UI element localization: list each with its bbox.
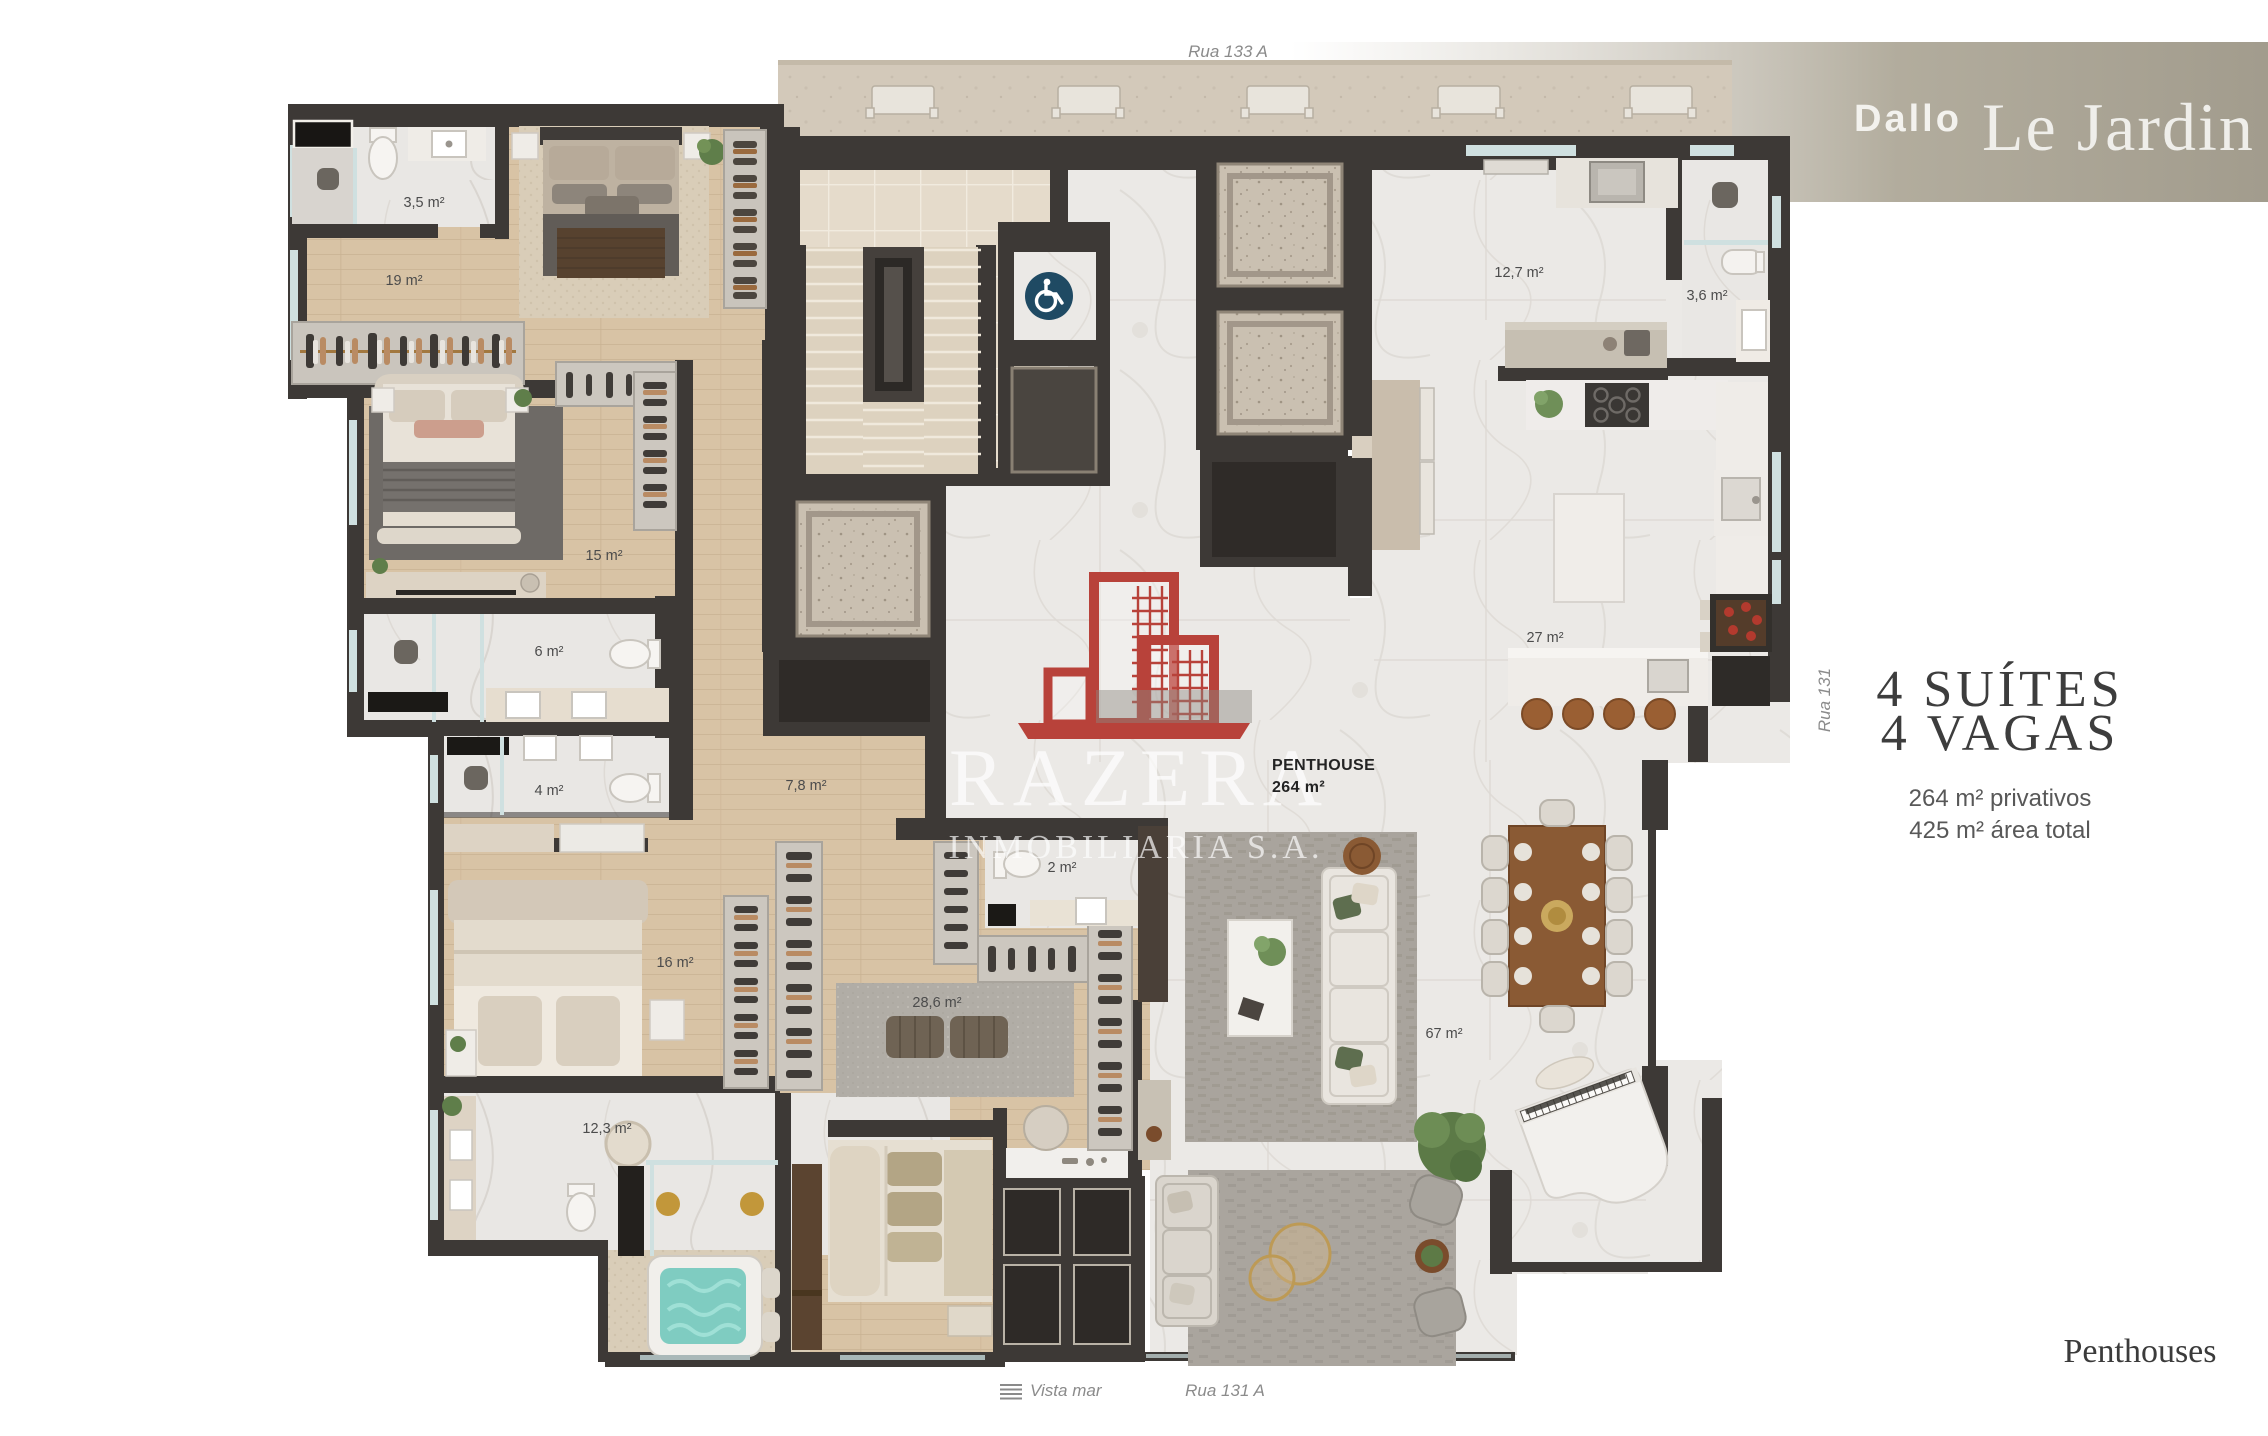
svg-text:Rua 133 A: Rua 133 A — [1188, 42, 1268, 61]
svg-text:6 m²: 6 m² — [535, 644, 564, 660]
svg-text:19 m²: 19 m² — [385, 273, 422, 289]
svg-text:4 m²: 4 m² — [535, 783, 564, 799]
svg-text:3,6 m²: 3,6 m² — [1686, 288, 1727, 304]
svg-text:Le Jardin: Le Jardin — [1982, 89, 2255, 165]
svg-text:PENTHOUSE: PENTHOUSE — [1272, 757, 1375, 774]
svg-text:RAZERA: RAZERA — [949, 732, 1331, 823]
svg-text:4 VAGAS: 4 VAGAS — [1881, 705, 2120, 762]
svg-text:264 m² privativos: 264 m² privativos — [1909, 785, 2092, 812]
svg-text:28,6 m²: 28,6 m² — [912, 995, 961, 1011]
svg-text:Rua 131: Rua 131 — [1815, 668, 1834, 732]
svg-text:7,8 m²: 7,8 m² — [785, 778, 826, 794]
svg-text:Vista mar: Vista mar — [1030, 1381, 1103, 1400]
svg-text:12,7 m²: 12,7 m² — [1494, 265, 1543, 281]
svg-text:Dallo: Dallo — [1854, 98, 1962, 140]
svg-text:12,3 m²: 12,3 m² — [582, 1121, 631, 1137]
svg-text:INMOBILIARIA S.A.: INMOBILIARIA S.A. — [949, 829, 1324, 866]
svg-text:425 m² área total: 425 m² área total — [1909, 817, 2090, 844]
svg-text:16 m²: 16 m² — [656, 955, 693, 971]
svg-text:15 m²: 15 m² — [585, 548, 622, 564]
svg-text:Rua 131 A: Rua 131 A — [1185, 1381, 1265, 1400]
svg-text:Penthouses: Penthouses — [2064, 1333, 2217, 1370]
svg-text:67 m²: 67 m² — [1425, 1026, 1462, 1042]
svg-text:27 m²: 27 m² — [1526, 630, 1563, 646]
svg-text:2 m²: 2 m² — [1048, 860, 1077, 876]
svg-text:264 m²: 264 m² — [1272, 779, 1325, 796]
svg-text:3,5 m²: 3,5 m² — [403, 195, 444, 211]
